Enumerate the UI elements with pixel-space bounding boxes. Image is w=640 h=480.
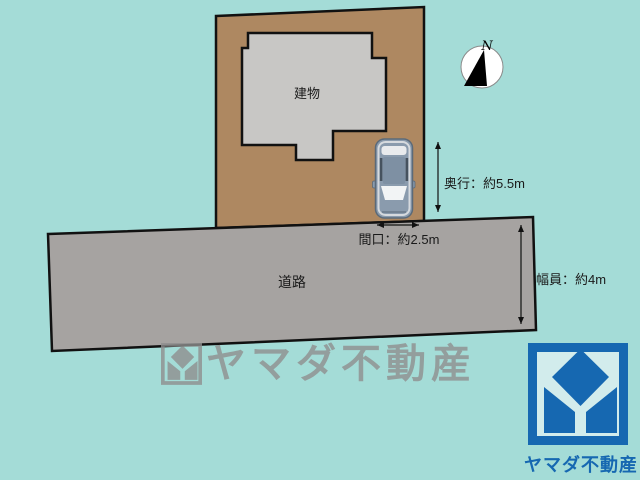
site-plan-canvas: 建物 N 奥行：約5.5m 間口：約2.5m 幅員：約4m 道路 ヤマダ不動産 … (0, 0, 640, 480)
depth-dimension-label: 奥行：約5.5m (444, 176, 525, 191)
frontage-dimension-label: 間口：約2.5m (359, 232, 440, 247)
site-plan-diagram: 建物 N 奥行：約5.5m 間口：約2.5m 幅員：約4m 道路 ヤマダ不動産 … (0, 0, 640, 480)
car-side-window-right (406, 158, 409, 181)
car-icon (373, 139, 416, 218)
watermark-text: ヤマダ不動産 (206, 342, 476, 386)
logo-text: ヤマダ不動産 (524, 454, 638, 475)
compass-north-label: N (480, 39, 493, 54)
car-windshield (381, 186, 407, 200)
car-roof (383, 157, 405, 184)
car-side-window-left (380, 158, 383, 181)
road-label: 道路 (278, 274, 306, 290)
watermark: ヤマダ不動産 (161, 342, 476, 386)
company-logo: ヤマダ不動産 (524, 343, 638, 475)
building-label: 建物 (294, 86, 320, 101)
road-width-dimension-label: 幅員：約4m (536, 272, 606, 287)
car-rear-window (382, 146, 407, 155)
